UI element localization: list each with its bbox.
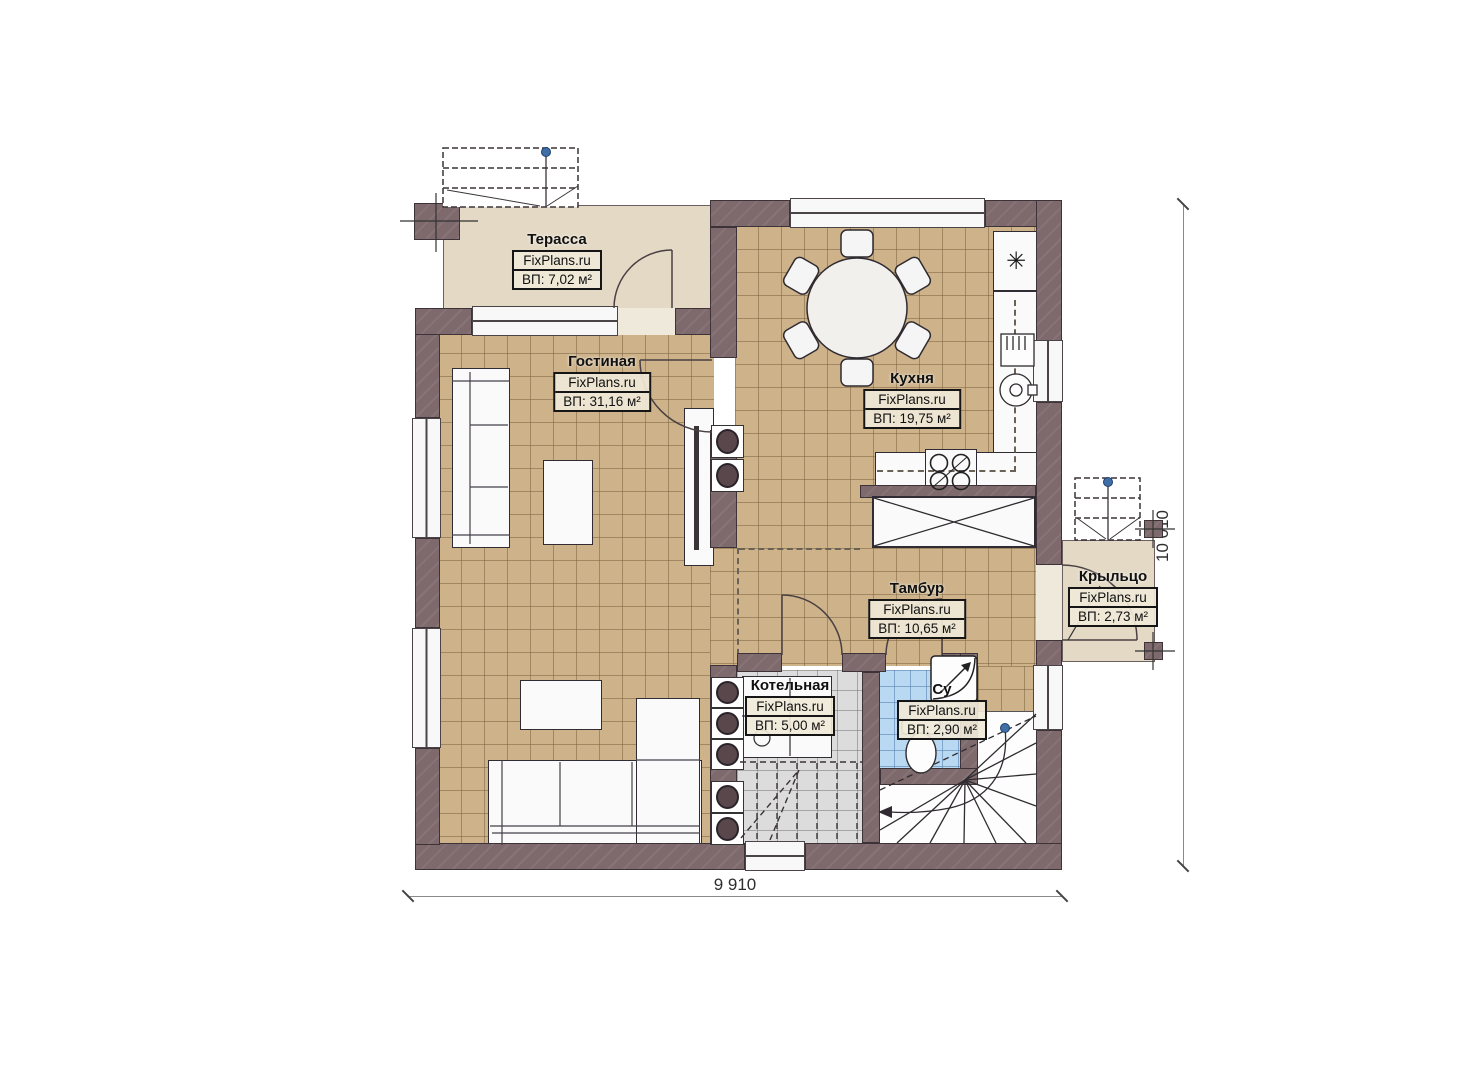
floor-plan-canvas: ✳	[0, 0, 1473, 1080]
room-label-living: Гостиная FixPlans.ru ВП: 31,16 м²	[553, 353, 651, 412]
room-name: Котельная	[745, 677, 835, 694]
window	[1033, 340, 1063, 402]
flue-knob	[711, 677, 744, 708]
room-name: Гостиная	[553, 353, 651, 370]
room-info-box: FixPlans.ru ВП: 7,02 м²	[512, 250, 602, 290]
terrace-door-opening	[618, 308, 675, 335]
window	[790, 198, 985, 228]
room-label-terrace: Терасса FixPlans.ru ВП: 7,02 м²	[512, 231, 602, 290]
flue-knob	[711, 425, 744, 458]
wall-segment	[415, 748, 440, 845]
dimension-width-label: 9 910	[695, 875, 775, 895]
dimension-line-right	[1183, 204, 1184, 866]
window	[1033, 665, 1063, 730]
flue-knob	[711, 739, 744, 770]
zone-dashed-line	[739, 548, 860, 550]
room-area: ВП: 7,02 м²	[514, 271, 600, 288]
room-label-tambour: Тамбур FixPlans.ru ВП: 10,65 м²	[868, 580, 966, 639]
watermark: FixPlans.ru	[1070, 589, 1156, 608]
window	[472, 306, 618, 336]
room-info-box: FixPlans.ru ВП: 31,16 м²	[553, 372, 651, 412]
watermark: FixPlans.ru	[514, 252, 600, 271]
room-area: ВП: 10,65 м²	[870, 620, 964, 637]
room-name: Тамбур	[868, 580, 966, 597]
sofa	[452, 368, 510, 548]
wall-segment	[880, 768, 978, 785]
table	[520, 680, 602, 730]
terrace-column	[414, 203, 460, 240]
terrace-exterior-stairs	[443, 148, 578, 208]
porch-exterior-stairs	[1075, 478, 1140, 541]
porch-column	[1144, 520, 1163, 538]
wall-segment	[842, 653, 886, 672]
room-info-box: FixPlans.ru ВП: 10,65 м²	[868, 599, 966, 639]
room-info-box: FixPlans.ru ВП: 5,00 м²	[745, 696, 835, 736]
flue-knob	[711, 781, 744, 813]
entry-door-opening	[1036, 565, 1062, 640]
kitchen-zone-dashed-line	[877, 470, 1016, 472]
wall-segment	[675, 308, 712, 335]
porch-column	[1144, 642, 1163, 660]
watermark: FixPlans.ru	[899, 702, 985, 721]
room-area: ВП: 5,00 м²	[747, 717, 833, 734]
wall-segment	[1036, 402, 1062, 565]
room-name: Су	[897, 681, 987, 698]
wall-segment	[737, 653, 782, 672]
watermark: FixPlans.ru	[865, 391, 959, 410]
flue-knob	[711, 708, 744, 739]
room-label-porch: Крыльцо FixPlans.ru ВП: 2,73 м²	[1068, 568, 1158, 627]
wall-segment	[415, 538, 440, 628]
room-area: ВП: 31,16 м²	[555, 393, 649, 410]
room-label-bathroom: Су FixPlans.ru ВП: 2,90 м²	[897, 681, 987, 740]
room-name: Кухня	[863, 370, 961, 387]
room-label-kitchen: Кухня FixPlans.ru ВП: 19,75 м²	[863, 370, 961, 429]
flue-knob	[711, 813, 744, 845]
room-area: ВП: 19,75 м²	[865, 410, 959, 427]
room-area: ВП: 2,73 м²	[1070, 608, 1156, 625]
watermark: FixPlans.ru	[555, 374, 649, 393]
room-area: ВП: 2,90 м²	[899, 721, 985, 738]
wall-segment	[1036, 640, 1062, 667]
tv	[694, 426, 699, 550]
room-label-boiler: Котельная FixPlans.ru ВП: 5,00 м²	[745, 677, 835, 736]
room-name: Терасса	[512, 231, 602, 248]
passage-floor	[710, 548, 737, 665]
window	[745, 841, 805, 871]
kitchen-zone-dashed-line	[1014, 300, 1016, 472]
snowflake-icon: ✳	[993, 231, 1039, 291]
coffee-table	[543, 460, 593, 545]
wardrobe	[872, 496, 1036, 548]
wall-segment	[1036, 200, 1062, 342]
watermark: FixPlans.ru	[747, 698, 833, 717]
window	[412, 628, 441, 748]
passage-dashed-line	[737, 548, 739, 665]
watermark: FixPlans.ru	[870, 601, 964, 620]
wall-segment	[415, 843, 745, 870]
wall-segment	[710, 227, 737, 358]
sofa-chaise	[636, 698, 700, 846]
room-name: Крыльцо	[1068, 568, 1158, 585]
room-info-box: FixPlans.ru ВП: 2,73 м²	[1068, 587, 1158, 627]
dimension-line-bottom	[408, 896, 1062, 897]
flue-knob	[711, 459, 744, 492]
wall-segment	[415, 308, 472, 335]
room-info-box: FixPlans.ru ВП: 2,90 м²	[897, 700, 987, 740]
wall-segment	[862, 672, 880, 843]
room-info-box: FixPlans.ru ВП: 19,75 м²	[863, 389, 961, 429]
window	[412, 418, 441, 538]
wall-segment	[710, 200, 790, 227]
wall-segment	[805, 843, 1062, 870]
